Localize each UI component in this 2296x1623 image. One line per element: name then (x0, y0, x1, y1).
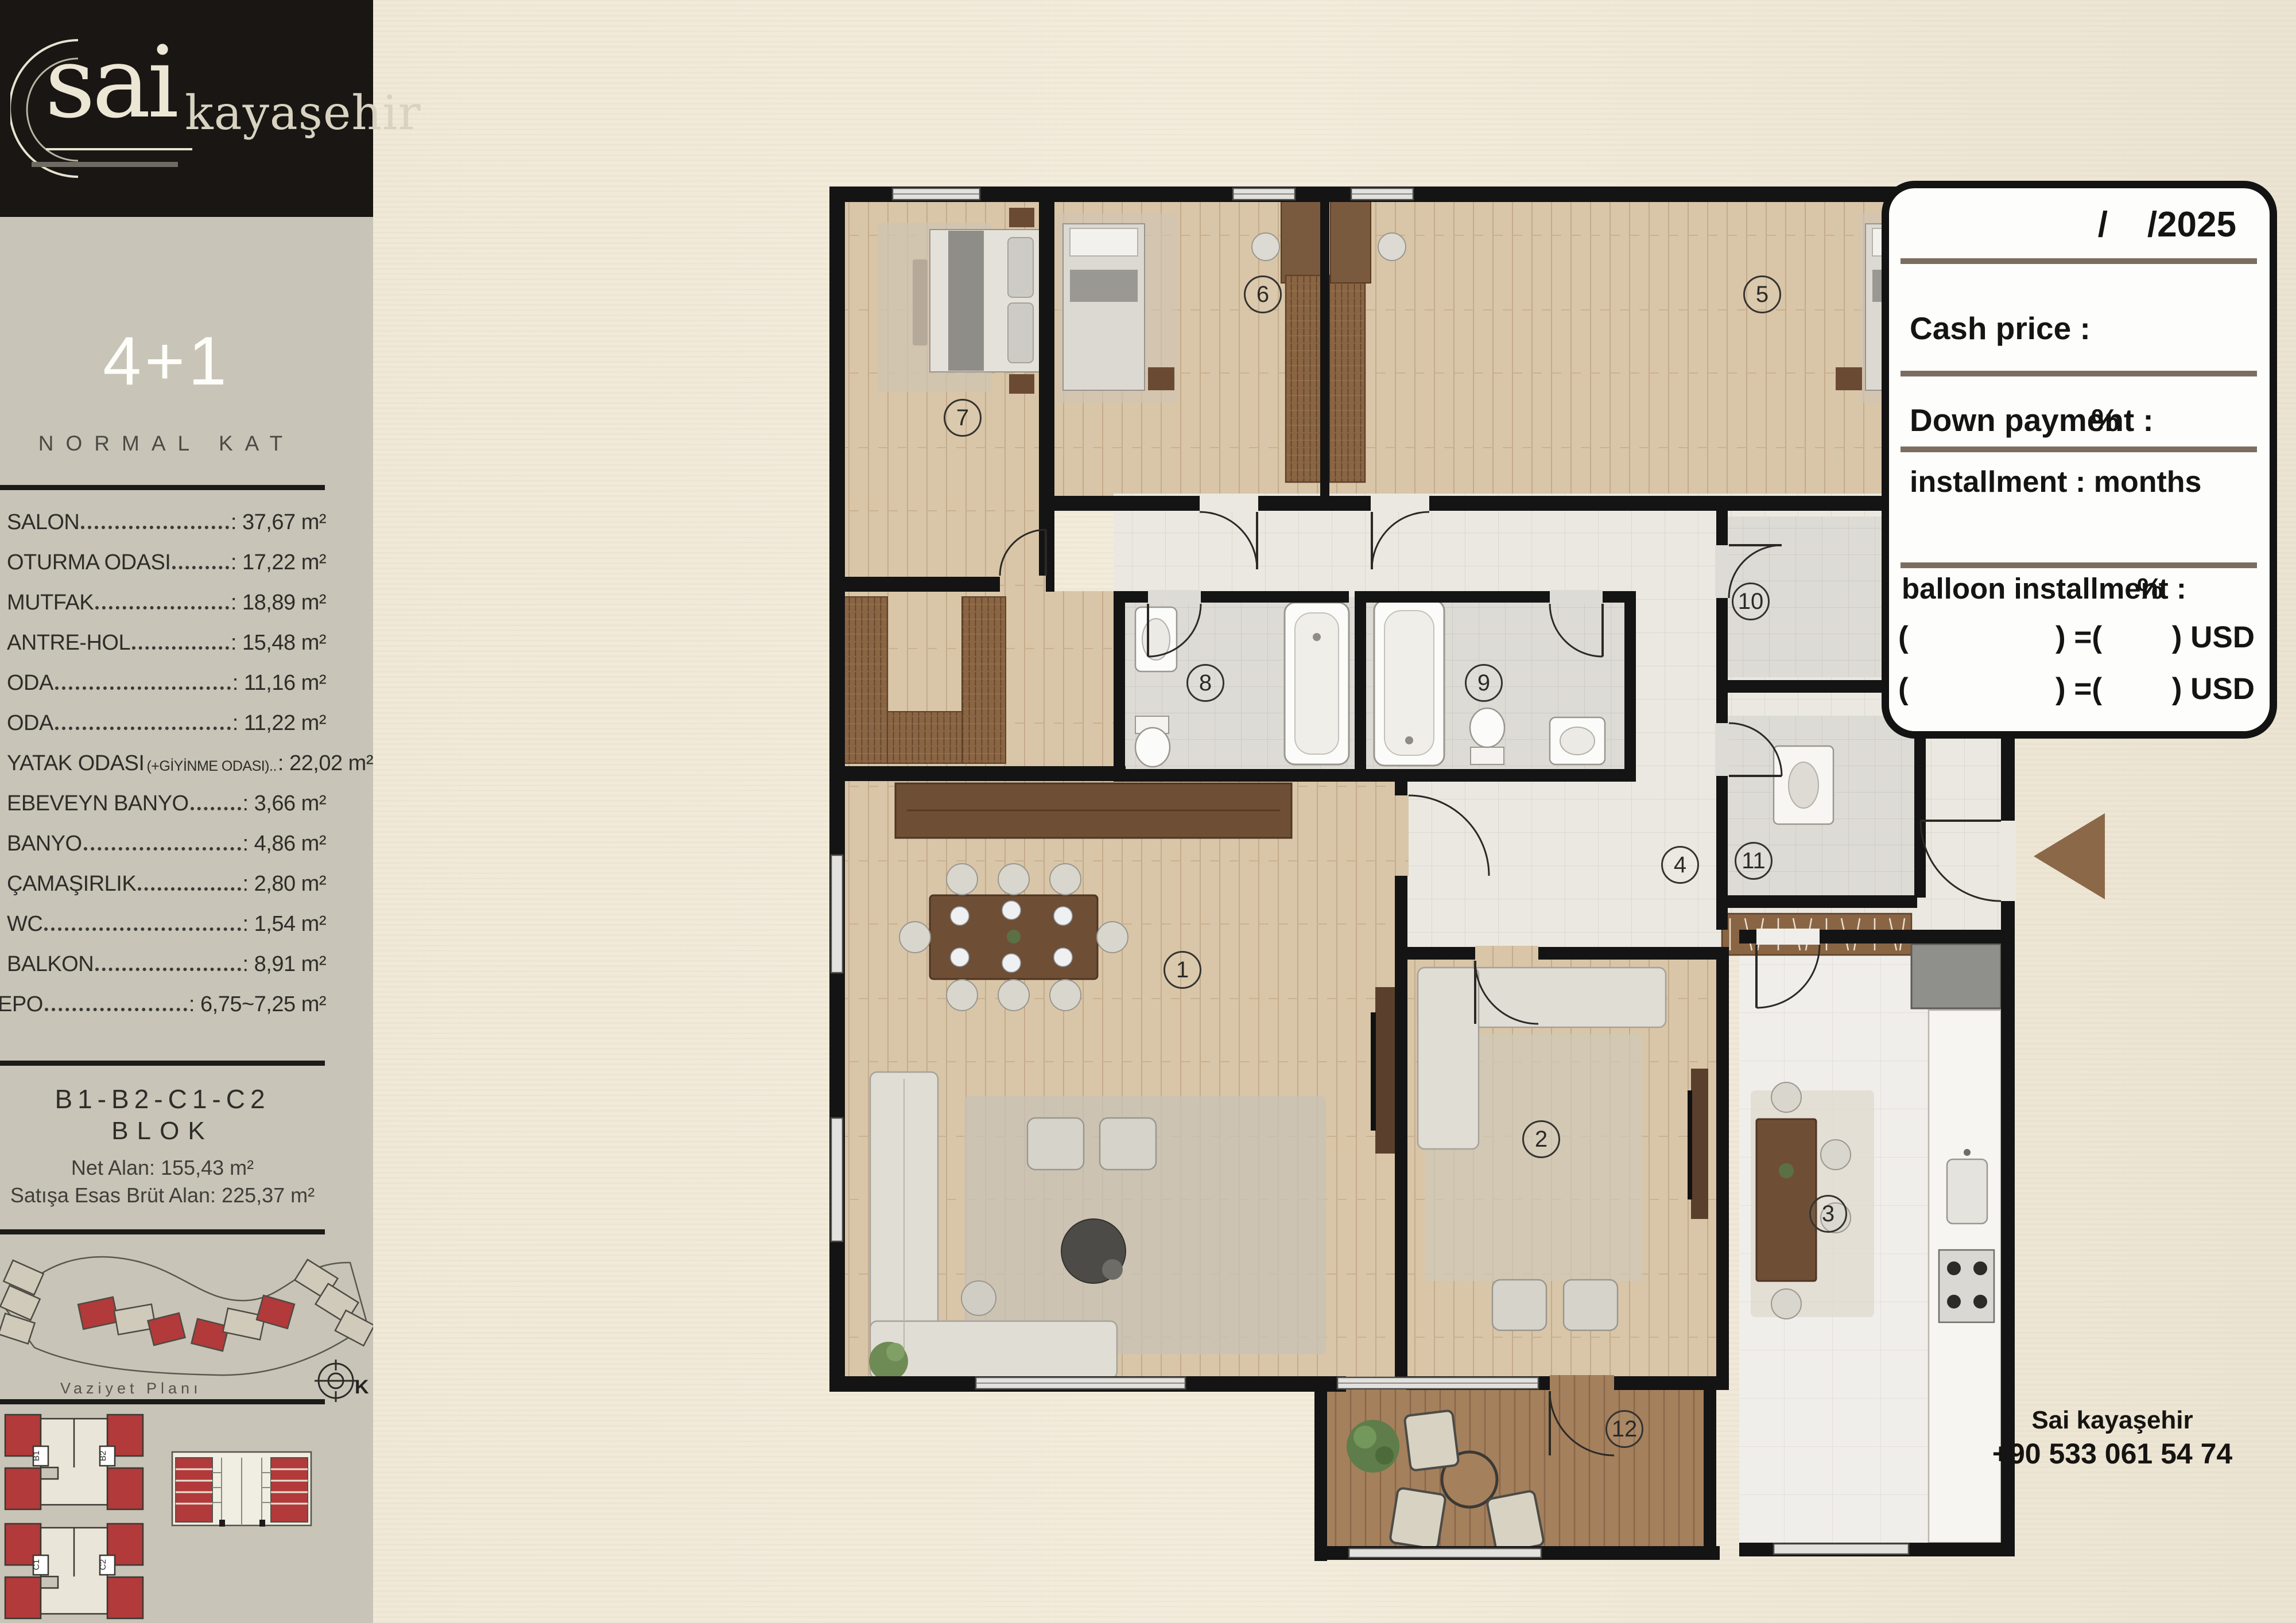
room-row: EPO: 6,75~7,25 m² (0, 977, 326, 1017)
balloon-percent: % (2137, 572, 2163, 605)
block-plate-b: B1 B2 (3, 1413, 145, 1512)
room-number-5: 5 (1743, 275, 1781, 313)
leader-dots (172, 566, 229, 569)
contact-name: Sai kayaşehir (1952, 1406, 2273, 1435)
leader-dots (55, 686, 231, 690)
floor-label: NORMAL KAT (0, 432, 333, 456)
room-area-list: SALON: 37,67 m² OTURMA ODASI: 17,22 m² M… (7, 495, 326, 1017)
room-row: OTURMA ODASI: 17,22 m² (7, 535, 326, 575)
leader-dots (84, 847, 241, 851)
installment-label: installment : months (1910, 465, 2201, 499)
leader-dots (55, 727, 231, 730)
divider (1901, 258, 2257, 264)
room-row: ÇAMAŞIRLIK: 2,80 m² (7, 856, 326, 896)
divider (1901, 371, 2257, 376)
brand-logo: sai kayaşehir (0, 0, 373, 217)
room-number-6: 6 (1244, 275, 1282, 313)
floor-plan: 1 2 3 4 5 6 7 8 9 10 11 12 (829, 146, 2018, 1564)
room-number-9: 9 (1465, 664, 1503, 702)
room-number-1: 1 (1163, 951, 1201, 989)
plate-label-b1: B1 (32, 1451, 41, 1461)
divider (0, 1229, 325, 1234)
leader-dots (191, 807, 241, 810)
plate-label-c2: C2 (98, 1559, 108, 1570)
contact-block: Sai kayaşehir +90 533 061 54 74 (1952, 1406, 2273, 1470)
logo-underline-shadow (32, 162, 178, 167)
cash-price-label: Cash price : (1910, 310, 2091, 347)
logo-wordmark: sai (45, 33, 176, 132)
compass-icon (315, 1360, 357, 1402)
room-row: ODA: 11,16 m² (7, 655, 326, 696)
gross-area: Satışa Esas Brüt Alan: 225,37 m² (0, 1183, 325, 1207)
room-number-12: 12 (1605, 1410, 1643, 1448)
leader-dots (95, 968, 241, 971)
down-payment-percent: % (2091, 402, 2119, 438)
compass-north-label: K (355, 1376, 369, 1399)
room-row: MUTFAK: 18,89 m² (7, 575, 326, 615)
room-number-11: 11 (1735, 842, 1773, 880)
room-row: BANYO: 4,86 m² (7, 816, 326, 856)
leader-dots (132, 646, 229, 650)
room-number-10: 10 (1732, 583, 1770, 620)
pricing-box: / /2025 Cash price : Down payment : % in… (1882, 181, 2277, 739)
room-row: EBEVEYN BANYO: 3,66 m² (7, 776, 326, 816)
entrance-arrow-icon (2034, 813, 2105, 899)
room-row: BALKON: 8,91 m² (7, 937, 326, 977)
leader-dots (44, 927, 241, 931)
room-number-2: 2 (1522, 1120, 1560, 1158)
contact-phone: +90 533 061 54 74 (1952, 1437, 2273, 1470)
logo-underline (46, 148, 192, 150)
room-row: ANTRE-HOL: 15,48 m² (7, 615, 326, 655)
sidebar: sai kayaşehir 4+1 NORMAL KAT SALON: 37,6… (0, 0, 373, 1623)
leader-dots (138, 887, 241, 891)
date-field: / /2025 (2098, 204, 2236, 245)
logo-subtitle: kayaşehir (185, 86, 421, 141)
elevation-drawing (170, 1446, 313, 1538)
divider (1901, 562, 2257, 568)
leader-dots (45, 1008, 187, 1011)
block-code: B1-B2-C1-C2 (0, 1084, 325, 1115)
site-plan-drawing (0, 1238, 373, 1402)
divider (1901, 446, 2257, 452)
room-row: SALON: 37,67 m² (7, 495, 326, 535)
room-number-4: 4 (1661, 846, 1699, 884)
room-row: YATAK ODASI(+GİYİNME ODASI)..: 22,02 m² (7, 736, 326, 776)
divider (0, 1061, 325, 1066)
unit-type: 4+1 (0, 321, 333, 401)
room-number-8: 8 (1186, 664, 1224, 702)
leader-dots (81, 526, 229, 529)
divider (0, 485, 325, 490)
floor-plan-drawing (829, 146, 2018, 1564)
room-number-7: 7 (944, 399, 982, 437)
siteplan-label: Vaziyet Planı (60, 1380, 202, 1397)
plate-label-c1: C1 (32, 1559, 41, 1570)
divider (0, 1399, 325, 1404)
block-plate-c: C1 C2 (3, 1522, 145, 1621)
room-row: ODA: 11,22 m² (7, 696, 326, 736)
room-row: WC: 1,54 m² (7, 896, 326, 937)
plate-label-b2: B2 (98, 1451, 108, 1461)
net-area: Net Alan: 155,43 m² (0, 1156, 325, 1180)
block-label: BLOK (0, 1117, 325, 1146)
leader-dots (95, 606, 229, 609)
room-number-3: 3 (1809, 1195, 1847, 1233)
